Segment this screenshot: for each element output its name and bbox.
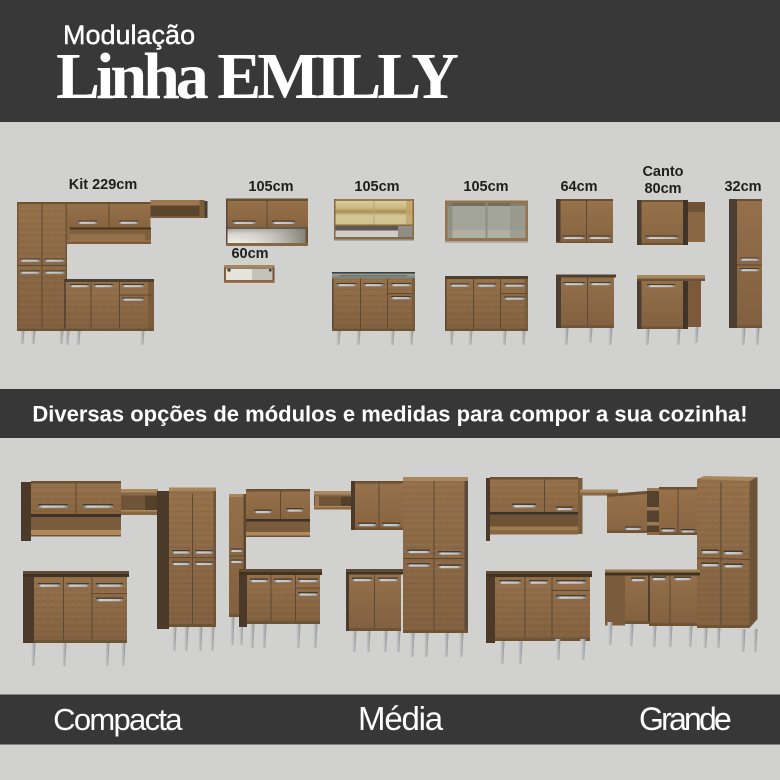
svg-text:Diversas opções de módulos e m: Diversas opções de módulos e medidas par… [32, 402, 747, 427]
svg-text:Compacta: Compacta [53, 702, 183, 737]
svg-text:Grande: Grande [639, 701, 731, 737]
svg-text:64cm: 64cm [560, 179, 597, 195]
svg-text:105cm: 105cm [463, 179, 508, 195]
svg-text:Linha EMILLY: Linha EMILLY [56, 40, 458, 113]
svg-text:Média: Média [358, 700, 444, 737]
svg-text:32cm: 32cm [724, 179, 761, 195]
svg-text:105cm: 105cm [354, 179, 399, 195]
svg-text:Canto: Canto [642, 164, 683, 180]
svg-text:60cm: 60cm [231, 246, 268, 262]
svg-text:Kit 229cm: Kit 229cm [69, 177, 138, 193]
svg-text:105cm: 105cm [248, 179, 293, 195]
svg-text:80cm: 80cm [644, 181, 681, 197]
